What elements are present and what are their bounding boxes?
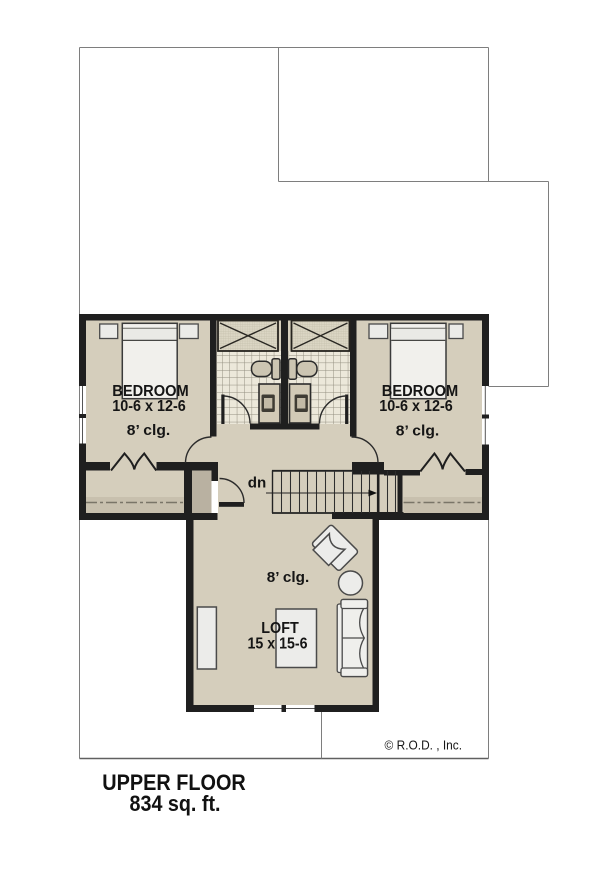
svg-text:8’ clg.: 8’ clg.	[396, 423, 440, 440]
svg-text:10-6 x 12-6: 10-6 x 12-6	[112, 398, 186, 415]
svg-text:© R.O.D. , Inc.: © R.O.D. , Inc.	[385, 738, 463, 753]
svg-text:834 sq. ft.: 834 sq. ft.	[130, 791, 221, 816]
svg-text:8’ clg.: 8’ clg.	[267, 569, 310, 586]
svg-text:dn: dn	[248, 476, 267, 492]
svg-text:LOFT: LOFT	[261, 620, 299, 637]
svg-text:15 x 15-6: 15 x 15-6	[248, 636, 308, 653]
svg-text:8’ clg.: 8’ clg.	[127, 422, 171, 439]
svg-text:10-6 x 12-6: 10-6 x 12-6	[379, 398, 453, 415]
